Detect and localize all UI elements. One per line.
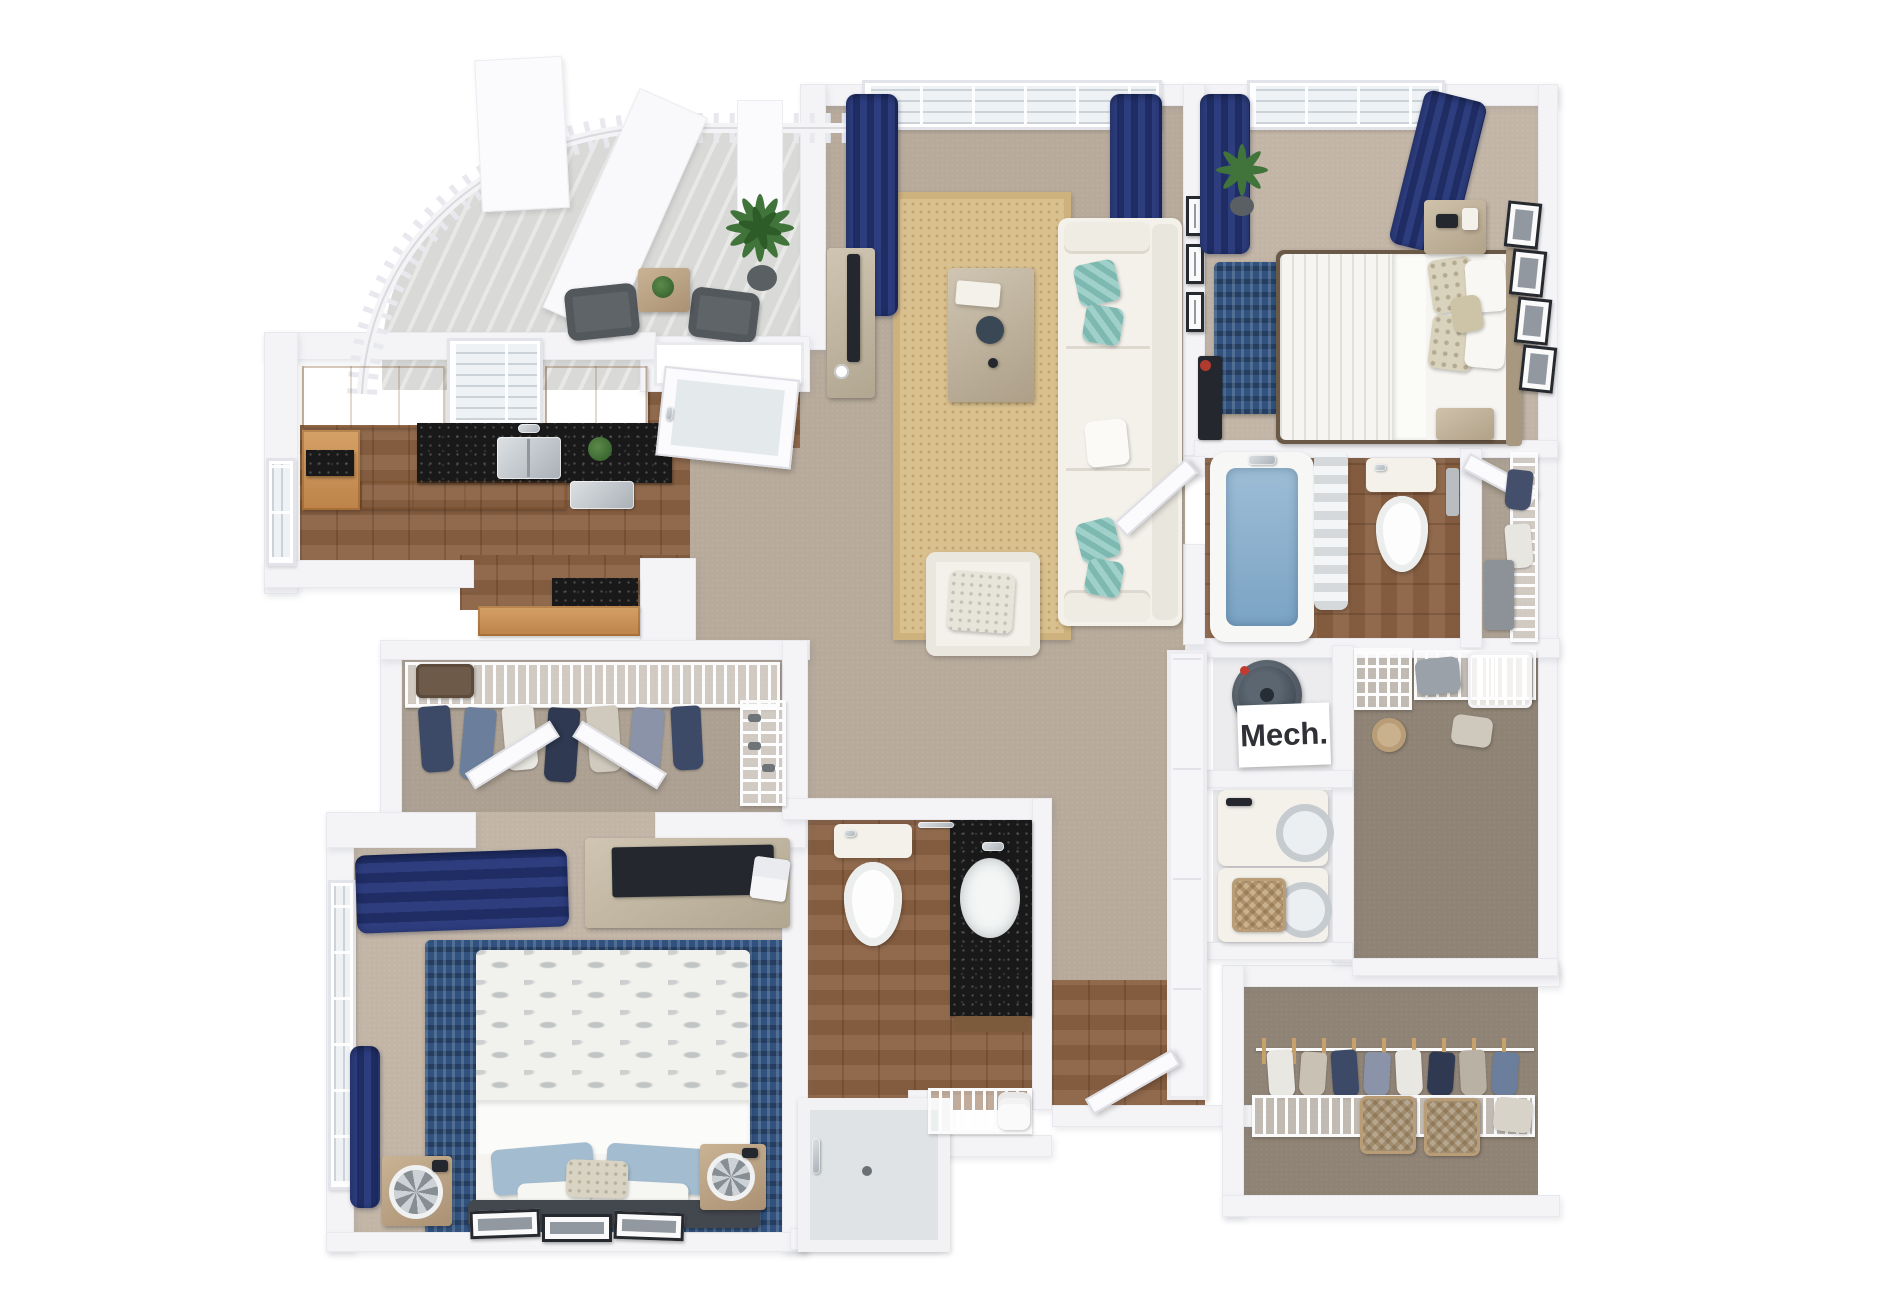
sofa-seat-seam-1 <box>1066 346 1150 349</box>
closet3-garment-1 <box>1266 1049 1295 1099</box>
closet1-wire-drawers <box>1354 648 1412 710</box>
kitchen-window-glass <box>272 464 290 560</box>
balcony-chair-left <box>563 282 640 341</box>
laundry-closet-doors <box>1167 650 1207 1100</box>
bedroom1-plant <box>1210 130 1274 222</box>
bedroom1-red-plant <box>1200 360 1211 371</box>
living-tv <box>847 254 860 362</box>
wall-bedroom2-top-a <box>326 812 476 848</box>
armchair-pillow <box>946 570 1016 634</box>
closet1-hat <box>1372 718 1406 752</box>
closet2-garment-7 <box>670 705 703 770</box>
bedroom1-runner-rug <box>1214 262 1280 414</box>
living-clock <box>834 364 849 379</box>
closet3-garment-6 <box>1426 1051 1455 1097</box>
wall-hall-right-b <box>1183 544 1205 645</box>
bedroom1-frame-4 <box>1519 344 1558 393</box>
toilet2-flush-button <box>844 830 856 837</box>
closet3-garment-8 <box>1491 1051 1519 1096</box>
coffee-table-books <box>955 280 1001 308</box>
sofa-pillow-teal-1 <box>1072 258 1122 308</box>
toilet2-tank <box>834 824 912 858</box>
bedroom1-frame-2 <box>1509 248 1548 297</box>
closet3-garment-2 <box>1298 1051 1327 1097</box>
bathroom2-sink <box>960 858 1020 938</box>
closet2-shoe-2 <box>748 742 761 750</box>
kitchen-passthrough-window <box>447 338 543 426</box>
closet1-towel-stack <box>1450 713 1494 748</box>
nightstand-left-fan <box>394 1170 438 1214</box>
coffee-table-cup <box>988 358 998 368</box>
bathtub-interior <box>1226 468 1298 626</box>
bedroom1-window <box>1247 80 1445 130</box>
laundry-dryer <box>1218 790 1328 866</box>
wall-closet2-left <box>380 640 402 832</box>
bathroom1-towel <box>1446 468 1459 516</box>
wall-mech-laundry-divider <box>1205 770 1353 788</box>
closet3-garment-7 <box>1459 1049 1487 1096</box>
closet2-shoe-3 <box>762 764 775 772</box>
kitchen-cooktop <box>306 450 354 476</box>
wall-laundry-bottom <box>1205 942 1353 960</box>
bathroom2-faucet <box>982 842 1004 851</box>
shower-drain <box>862 1166 872 1176</box>
bedroom2-floor-frame-2 <box>542 1214 612 1242</box>
sofa-arm-top <box>1064 222 1150 254</box>
floor-plan-scene: Mech. <box>0 0 1890 1303</box>
bathtub-faucet <box>1248 455 1276 465</box>
kitchen-passthrough-glass <box>453 344 537 420</box>
kitchen-faucet <box>518 424 540 433</box>
kitchen-counter-plant <box>588 437 612 461</box>
bedroom2-leaf-duvet <box>476 950 750 1102</box>
kitchen-cabinet-end-face <box>478 606 640 636</box>
wall-kitchen-dining-stub <box>640 558 696 650</box>
closet2-garment-1 <box>418 705 455 773</box>
bedroom1-nightstand-bottom <box>1436 408 1494 440</box>
closet2-shoe-rack <box>740 700 786 806</box>
laundry-basket <box>1232 878 1286 932</box>
closet-column-gray-unit <box>1484 560 1514 630</box>
bathroom2-vanity-base <box>954 1016 1030 1032</box>
water-heater-cap <box>1260 688 1274 702</box>
bedroom2-window-glass <box>334 886 350 1184</box>
bedroom2-laptop <box>749 856 790 903</box>
wall-mech-right <box>1332 645 1354 963</box>
wall-bathroom2-top <box>782 798 1052 820</box>
sofa-seat-seam-2 <box>1066 468 1150 471</box>
dryer-door-ring <box>1276 804 1334 862</box>
water-heater-valve <box>1240 666 1249 675</box>
gallery-frame-3 <box>1186 292 1204 332</box>
bedroom1-frame-1 <box>1504 200 1543 249</box>
closet2-shoe-1 <box>748 714 761 722</box>
wall-right-exterior <box>1538 84 1558 980</box>
bedroom2-pillow-accent <box>565 1159 628 1199</box>
sofa-pillow-white <box>1084 418 1131 468</box>
closet1-laundry-hamper <box>1468 652 1532 708</box>
kitchen-window <box>266 458 296 566</box>
bedroom1-pillow-accent <box>1449 294 1485 335</box>
closet3-box-1 <box>1360 1096 1416 1154</box>
balcony-table-plant <box>652 276 674 298</box>
hall-carpet-strip <box>1052 820 1185 980</box>
nightstand-right-fan <box>712 1158 750 1196</box>
toilet1-flush-button <box>1374 464 1386 471</box>
closet-column-garment-navy <box>1504 469 1534 511</box>
closet3-garment-5 <box>1395 1049 1423 1096</box>
nightstand-right-clock <box>742 1148 758 1158</box>
sofa-pillow-teal-4 <box>1083 557 1125 599</box>
shower-fixture <box>812 1138 820 1174</box>
bedroom2-floor-frame-3 <box>614 1211 685 1241</box>
closet1-clothes-pile <box>1414 656 1462 696</box>
linen-towels <box>998 1092 1030 1130</box>
closet3-clothes-pile <box>1492 1096 1533 1134</box>
bedroom1-window-glass <box>1253 86 1439 124</box>
closet2-suitcase <box>416 664 474 698</box>
balcony-palm-plant <box>718 176 802 298</box>
roof-slab <box>474 56 570 212</box>
wall-closet3-bottom <box>1222 1195 1560 1217</box>
bedroom1-frame-3 <box>1514 296 1553 345</box>
bedroom2-curtain-bundle <box>355 848 570 933</box>
closet3-garment-4 <box>1363 1051 1391 1096</box>
bedroom1-nightstand-clock <box>1436 214 1458 228</box>
shower-curtain <box>1314 452 1348 610</box>
bedroom2-floor-frame-1 <box>470 1209 541 1239</box>
kitchen-dishwasher <box>570 481 634 509</box>
closet3-garment-3 <box>1330 1049 1359 1099</box>
bedroom2-curtain-lower <box>350 1046 380 1208</box>
coffee-table-vase <box>976 316 1004 344</box>
kitchen-cabinets-top-left <box>302 366 445 428</box>
wall-closet1-bottom <box>1352 958 1558 976</box>
kitchen-cabinets-lower <box>360 481 566 509</box>
bedroom1-duvet-fold <box>1392 254 1426 440</box>
closet2-garment-4 <box>543 707 580 783</box>
mech-closet-label: Mech. <box>1239 715 1328 754</box>
nightstand-left-phone <box>432 1160 448 1172</box>
bedroom1-sage-blanket <box>1280 254 1392 440</box>
sofa-pillow-teal-2 <box>1081 303 1124 346</box>
wall-bathroom2-right <box>1032 798 1052 1110</box>
kitchen-sink-divider <box>527 439 530 477</box>
wall-closet3-left <box>1222 965 1244 1217</box>
entry-door-frosted-glass <box>671 379 785 456</box>
wall-closet2-top <box>380 640 810 660</box>
closet3-box-2 <box>1424 1098 1480 1156</box>
sofa-backrest <box>1152 224 1178 620</box>
dryer-controls <box>1226 798 1252 806</box>
kitchen-cabinets-top-right <box>545 366 648 428</box>
entry-door <box>655 366 800 470</box>
central-hall-floor <box>800 655 1185 820</box>
mech-closet-sign: Mech. <box>1237 702 1331 767</box>
bathroom2-towel-bar <box>918 822 954 828</box>
bedroom1-nightstand-lamp <box>1462 208 1478 230</box>
